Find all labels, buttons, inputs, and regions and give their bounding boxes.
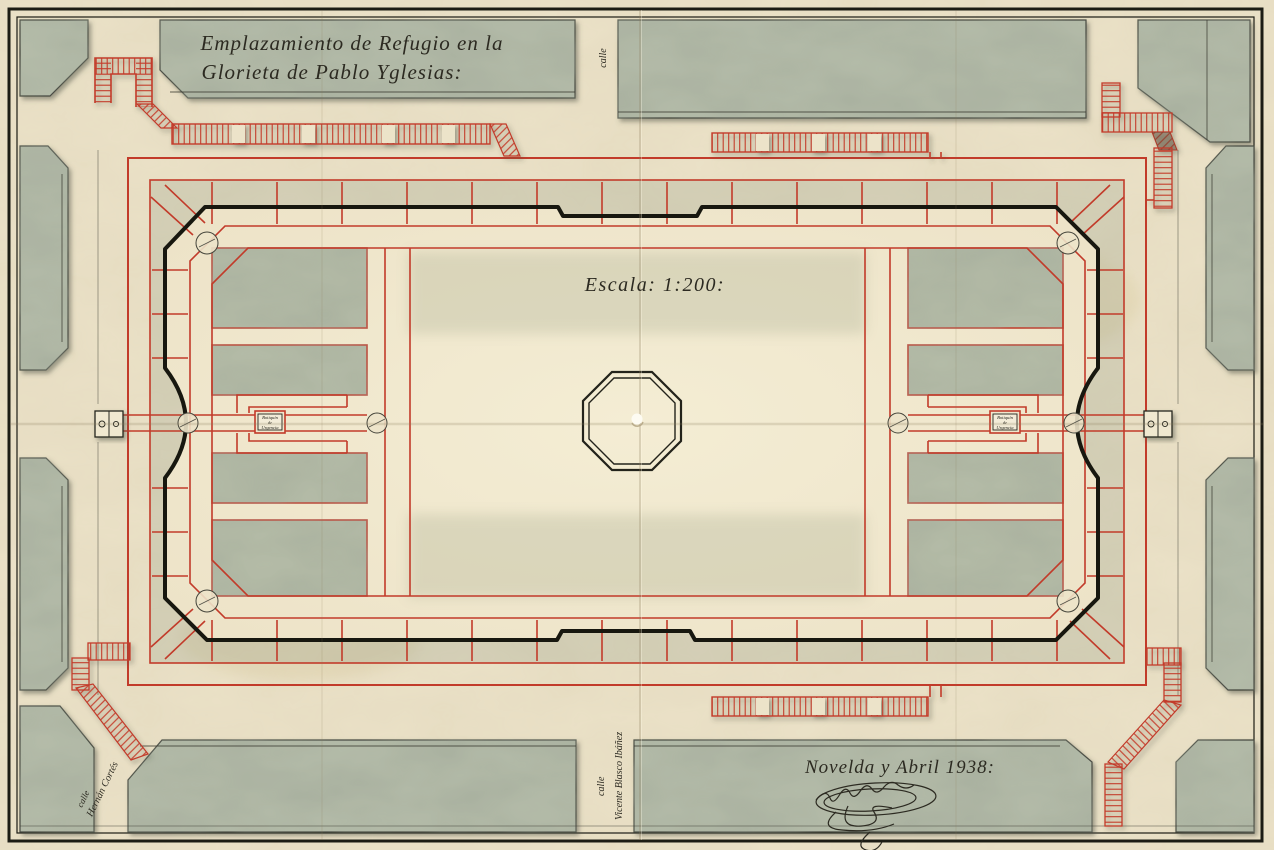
footer-date: Novelda y Abril 1938:	[804, 757, 995, 778]
parterre	[908, 520, 1063, 596]
city-block	[128, 740, 576, 832]
city-block	[634, 740, 1092, 832]
scale-label: Escala: 1:200:	[584, 274, 725, 296]
street-label-top: calle	[598, 48, 609, 68]
parterre	[212, 520, 367, 596]
city-block	[20, 146, 68, 370]
city-block	[1206, 458, 1254, 690]
parterre	[908, 453, 1063, 503]
parterre	[908, 345, 1063, 395]
first-aid-station-right: Botiquín de Urgencia	[990, 411, 1020, 433]
city-block	[20, 458, 68, 690]
parterre	[212, 345, 367, 395]
svg-text:Urgencia: Urgencia	[261, 425, 279, 430]
first-aid-station-left: Botiquín de Urgencia	[255, 411, 285, 433]
refuge-site-plan-page: Botiquín de Urgencia Botiquín de Urgenci…	[0, 0, 1274, 850]
parterre	[212, 453, 367, 503]
svg-text:calle: calle	[596, 776, 607, 796]
city-block	[1176, 740, 1254, 832]
city-block	[1206, 146, 1254, 370]
svg-text:Urgencia: Urgencia	[996, 425, 1014, 430]
city-block	[618, 20, 1086, 118]
svg-text:Vicente Blasco Ibáñez: Vicente Blasco Ibáñez	[614, 732, 625, 820]
plan-title-line2: Glorieta de Pablo Yglesias:	[202, 60, 463, 84]
plan-title-line1: Emplazamiento de Refugio en la	[200, 31, 504, 55]
refuge-site-plan: Botiquín de Urgencia Botiquín de Urgenci…	[0, 0, 1274, 850]
